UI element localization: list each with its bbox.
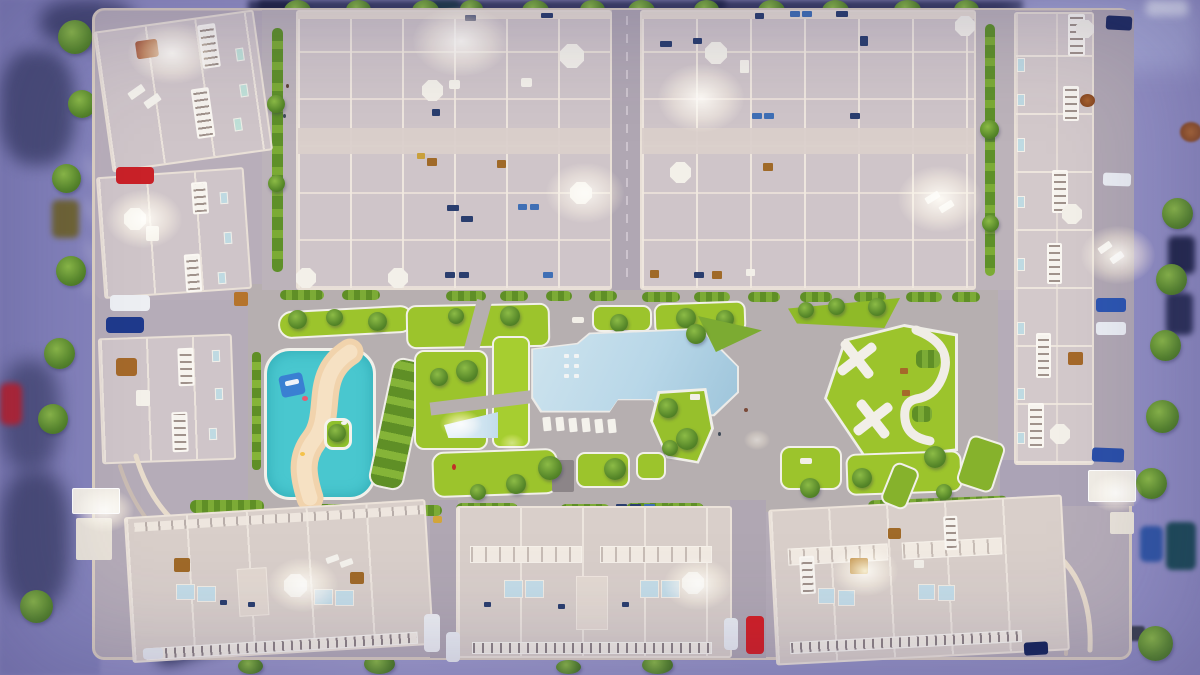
- aerial-site-render: [0, 0, 1200, 675]
- vignette: [0, 0, 1200, 675]
